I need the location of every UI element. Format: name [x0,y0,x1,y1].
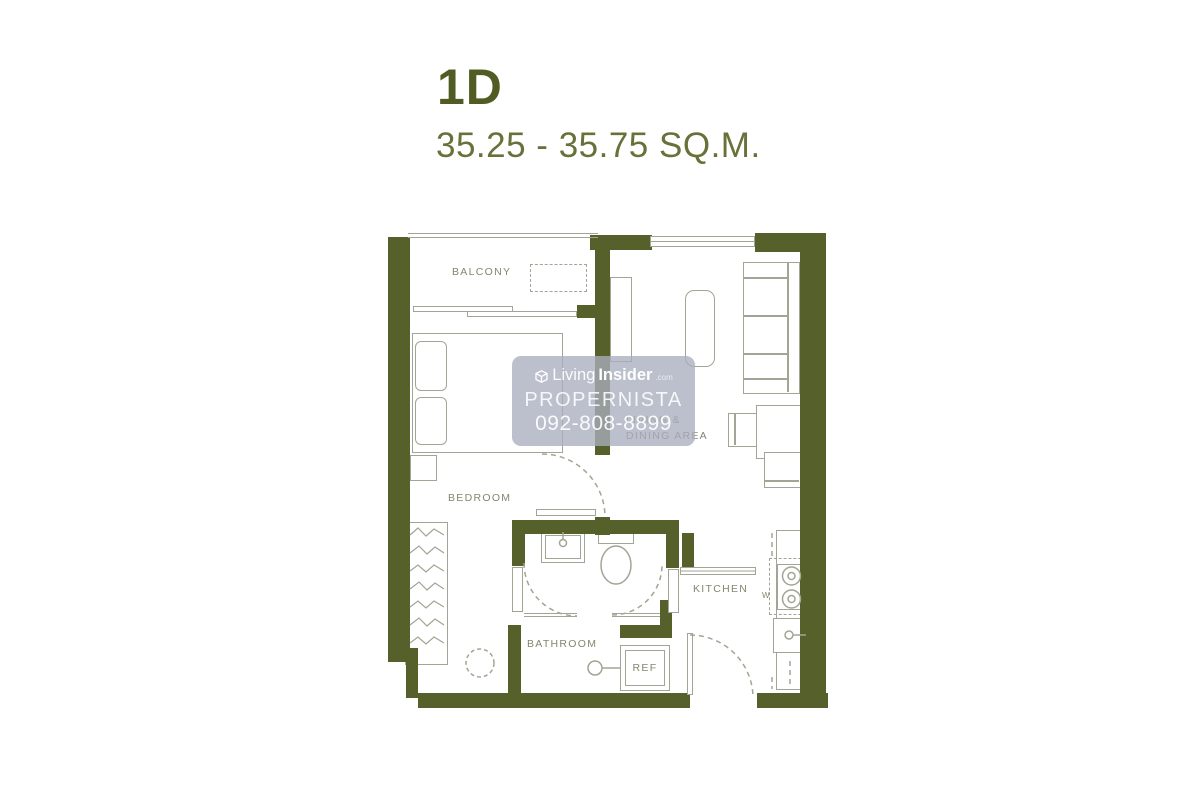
kitchen-label: KITCHEN [693,583,748,595]
toilet-bowl [601,546,631,584]
watermark-brand-suffix: .com [655,369,672,387]
watermark-agent-name: PROPERNISTA [524,389,682,412]
unit-area-range: 35.25 - 35.75 SQ.M. [436,126,761,166]
sofa-armrest-line [744,277,787,279]
watermark-brand-light: Living [552,366,595,384]
balcony-sliding-door-panel-2 [467,311,577,317]
tv-console [610,277,632,362]
bathroom-door-leaf-left [512,567,523,612]
bathroom-partition-2 [612,613,660,617]
watermark-logo-row: Living Insider .com [534,366,673,387]
balcony-railing [408,233,598,238]
wall-right [800,248,826,708]
bedroom-label: BEDROOM [448,492,511,504]
refrigerator-box: REF [620,645,670,691]
sofa-cushion-line-2 [744,353,787,355]
bedroom-stool [466,649,494,677]
unit-type-title: 1D [437,58,503,116]
washer-marker-label: W [762,591,770,600]
bed-pillow [415,341,447,391]
wall-bathroom-top [512,520,679,534]
bathroom-sink-basin [545,535,581,559]
coffee-table [685,290,715,367]
wall-left-step-2 [406,648,418,698]
shower-drain-icon [588,661,620,675]
bathroom-sink [541,531,585,563]
dining-table [756,405,801,459]
wall-kitchen-stub [682,533,694,567]
sofa-armrest-line-2 [744,378,787,380]
dining-chair-2 [764,452,801,488]
bathroom-label: BATHROOM [527,638,597,650]
kitchen-pass-counter [680,567,756,575]
floor-plan: REF [388,233,828,708]
bathroom-door-arc-right [612,565,662,615]
watermark: Living Insider .com PROPERNISTA 092-808-… [512,356,695,446]
nightstand [410,455,437,481]
chair-back-line-2 [765,480,799,482]
sofa-back-line [787,263,789,392]
wardrobe [405,522,448,665]
refrigerator-label: REF [633,662,658,674]
sofa-cushion-line [744,315,787,317]
wall-bottom-left [418,693,690,708]
wall-bathroom-left-lower [508,625,521,693]
balcony-ac-unit [530,264,587,292]
wall-balcony-stub [577,305,610,318]
wall-top-right [755,233,826,252]
living-window [650,236,755,247]
wall-left [388,237,410,657]
wall-bathroom-left-upper [512,520,525,566]
page: 1D 35.25 - 35.75 SQ.M. [0,0,1200,801]
watermark-brand-bold: Insider [598,366,652,384]
bedroom-door-leaf [536,509,596,516]
bed-pillow-2 [415,397,447,445]
balcony-label: BALCONY [452,266,511,278]
bedroom-door-arc [542,454,605,517]
bathroom-door-leaf-right [668,569,679,613]
wall-bathroom-right-upper [666,520,679,568]
bathroom-door-arc-left [524,563,577,616]
watermark-phone: 092-808-8899 [535,412,672,436]
entry-door-leaf [687,633,693,695]
entry-door-arc [690,635,753,698]
bathroom-partition [524,613,577,617]
sofa [743,262,800,394]
livinginsider-logo-icon [534,369,549,384]
chair-back-line [734,414,736,445]
